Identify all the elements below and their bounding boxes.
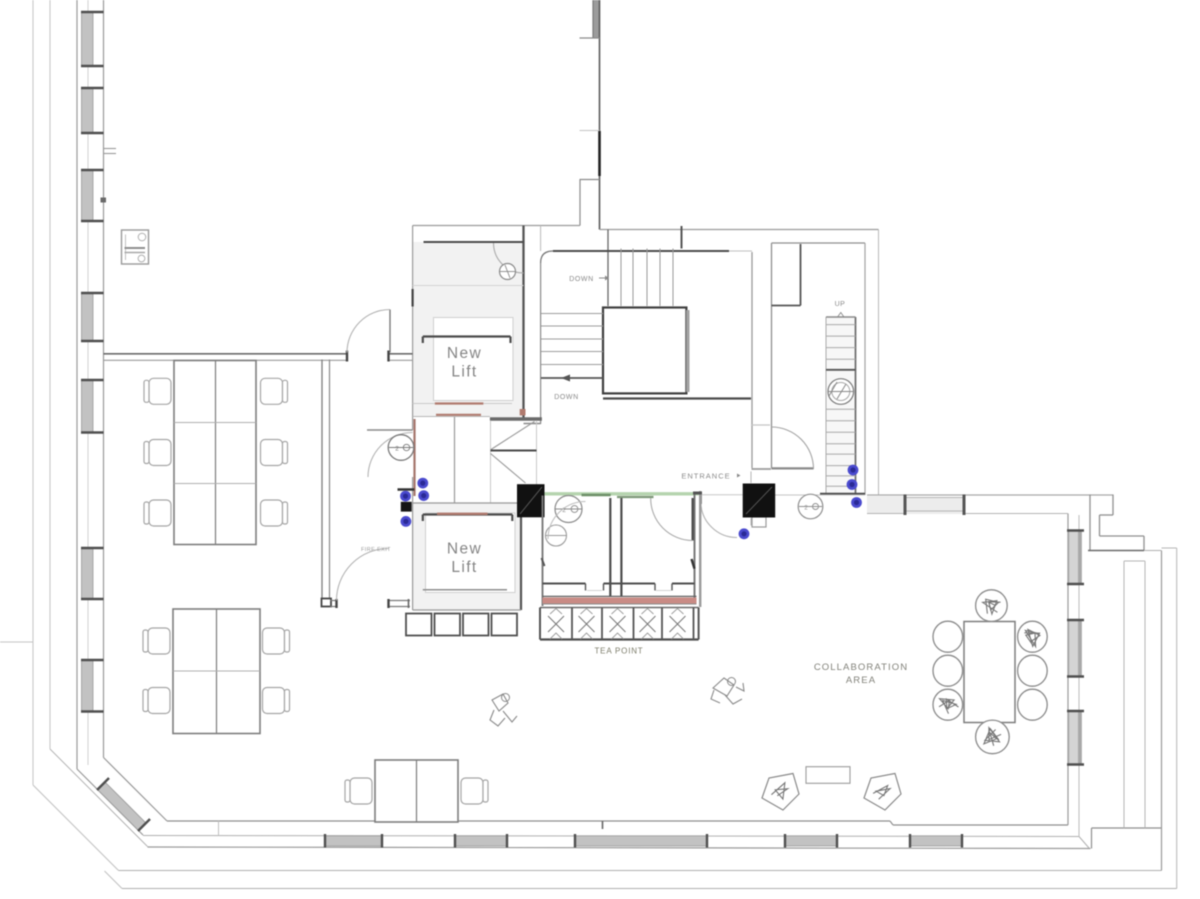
svg-text:ENTRANCE: ENTRANCE xyxy=(681,472,730,481)
svg-text:Lift: Lift xyxy=(451,364,477,381)
svg-text:New: New xyxy=(447,345,482,362)
svg-text:UP: UP xyxy=(835,301,846,308)
svg-text:DOWN: DOWN xyxy=(554,394,579,401)
svg-text:AREA: AREA xyxy=(846,675,876,686)
svg-text:Lift: Lift xyxy=(451,559,477,576)
svg-text:FIRE EXIT: FIRE EXIT xyxy=(361,547,391,553)
svg-text:DOWN: DOWN xyxy=(569,276,594,283)
svg-text:New: New xyxy=(447,541,482,558)
svg-text:2: 2 xyxy=(395,446,399,453)
svg-text:TEA POINT: TEA POINT xyxy=(595,647,644,656)
svg-text:COLLABORATION: COLLABORATION xyxy=(814,662,908,673)
